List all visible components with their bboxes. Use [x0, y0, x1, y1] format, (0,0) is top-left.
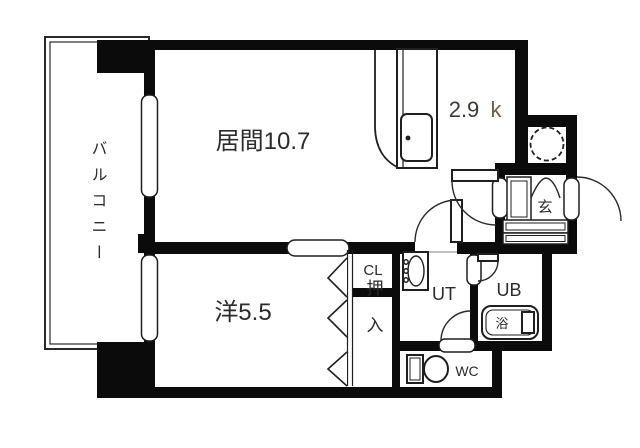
- balcony-label: バルコニー: [89, 140, 107, 270]
- sliding-door-living-bedroom: [287, 240, 349, 256]
- folding-door-chevron-1: [328, 258, 347, 297]
- kitchen-sink: [401, 114, 432, 161]
- bathtub-faucet-box: [522, 312, 534, 333]
- kitchen-open-boundary-line: [375, 50, 397, 167]
- utility-label: UT: [432, 284, 456, 304]
- wall-outer-right-lower: [542, 242, 552, 351]
- kitchen-faucet-dot: [406, 136, 411, 141]
- wall-top: [144, 40, 528, 50]
- front-door-swing-arc: [577, 177, 621, 221]
- wall-closet-utility: [392, 242, 400, 398]
- bathtub-label: 浴: [495, 316, 508, 331]
- wall-left: [144, 40, 155, 398]
- toilet-bowl: [424, 356, 448, 382]
- entrance-shoe-cabinet-row1: [503, 220, 568, 233]
- entrance-step-curve: [531, 178, 560, 198]
- toilet-tank: [407, 355, 423, 383]
- unit-bath-label: UB: [496, 280, 521, 300]
- living-room-label: 居間10.7: [216, 128, 311, 155]
- window-bedroom-balcony: [142, 255, 158, 341]
- doorway-living-entrance: [493, 178, 508, 218]
- washbasin-tap-1: [404, 260, 408, 264]
- folding-door-chevron-3: [328, 352, 347, 386]
- entrance-front-door-opening: [564, 178, 579, 220]
- balcony-wall-block-top: [97, 40, 152, 73]
- floorplan-figure: バルコニー 居間10.7 2.9 k 玄 洋5.5 CL 押入 UT UB 浴 …: [0, 0, 640, 448]
- wall-bottom: [144, 387, 502, 398]
- wall-entrance-top: [495, 163, 577, 175]
- balcony-wall-block-bottom: [97, 342, 152, 398]
- toilet-label: WC: [455, 363, 478, 379]
- doorway-wc: [439, 339, 475, 352]
- folding-door-chevron-2: [328, 300, 347, 337]
- kitchen-size-label: 2.9: [449, 97, 480, 122]
- entrance-shoe-cabinet-row2: [503, 233, 568, 244]
- washbasin-tap-2: [404, 269, 408, 273]
- door-leaf-bath: [478, 254, 498, 261]
- washing-machine-space: [531, 128, 564, 161]
- closet-area: [328, 250, 353, 386]
- door-leaf-living-entrance: [452, 170, 498, 181]
- western-room-label: 洋5.5: [214, 299, 271, 326]
- kitchen-fixtures: [375, 49, 437, 168]
- entrance-label: 玄: [537, 199, 552, 216]
- window-living-balcony: [142, 95, 158, 197]
- washbasin-tap-3: [404, 278, 408, 282]
- oshiire-label: 押入: [364, 279, 384, 353]
- floorplan-canvas: バルコニー 居間10.7 2.9 k 玄 洋5.5 CL 押入 UT UB 浴 …: [0, 0, 640, 448]
- kitchen-unit-label: k: [491, 97, 503, 122]
- wall-kitchen-right: [515, 40, 528, 163]
- door-swing-wc: [441, 311, 471, 341]
- closet-label: CL: [363, 262, 382, 279]
